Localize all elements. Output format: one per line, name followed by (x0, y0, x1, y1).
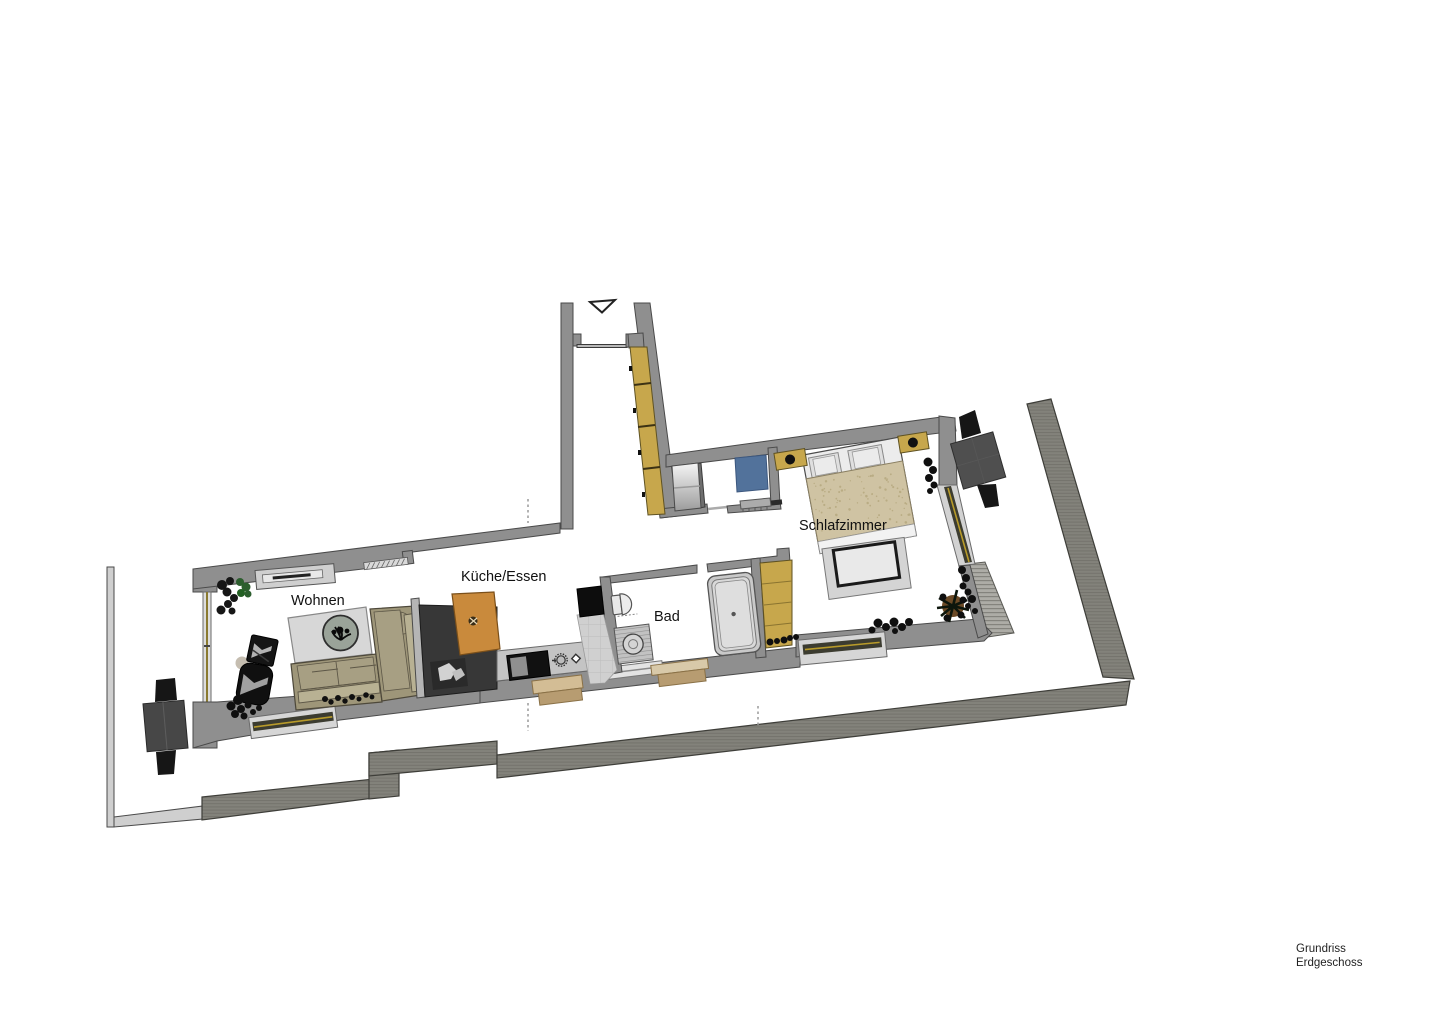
svg-text:Erdgeschoss: Erdgeschoss (1296, 957, 1363, 969)
svg-text:Wohnen: Wohnen (291, 593, 345, 609)
svg-text:Grundriss: Grundriss (1296, 943, 1346, 955)
svg-text:Bad: Bad (654, 609, 680, 625)
svg-text:Küche/Essen: Küche/Essen (461, 569, 546, 585)
svg-text:Schlafzimmer: Schlafzimmer (799, 518, 887, 534)
